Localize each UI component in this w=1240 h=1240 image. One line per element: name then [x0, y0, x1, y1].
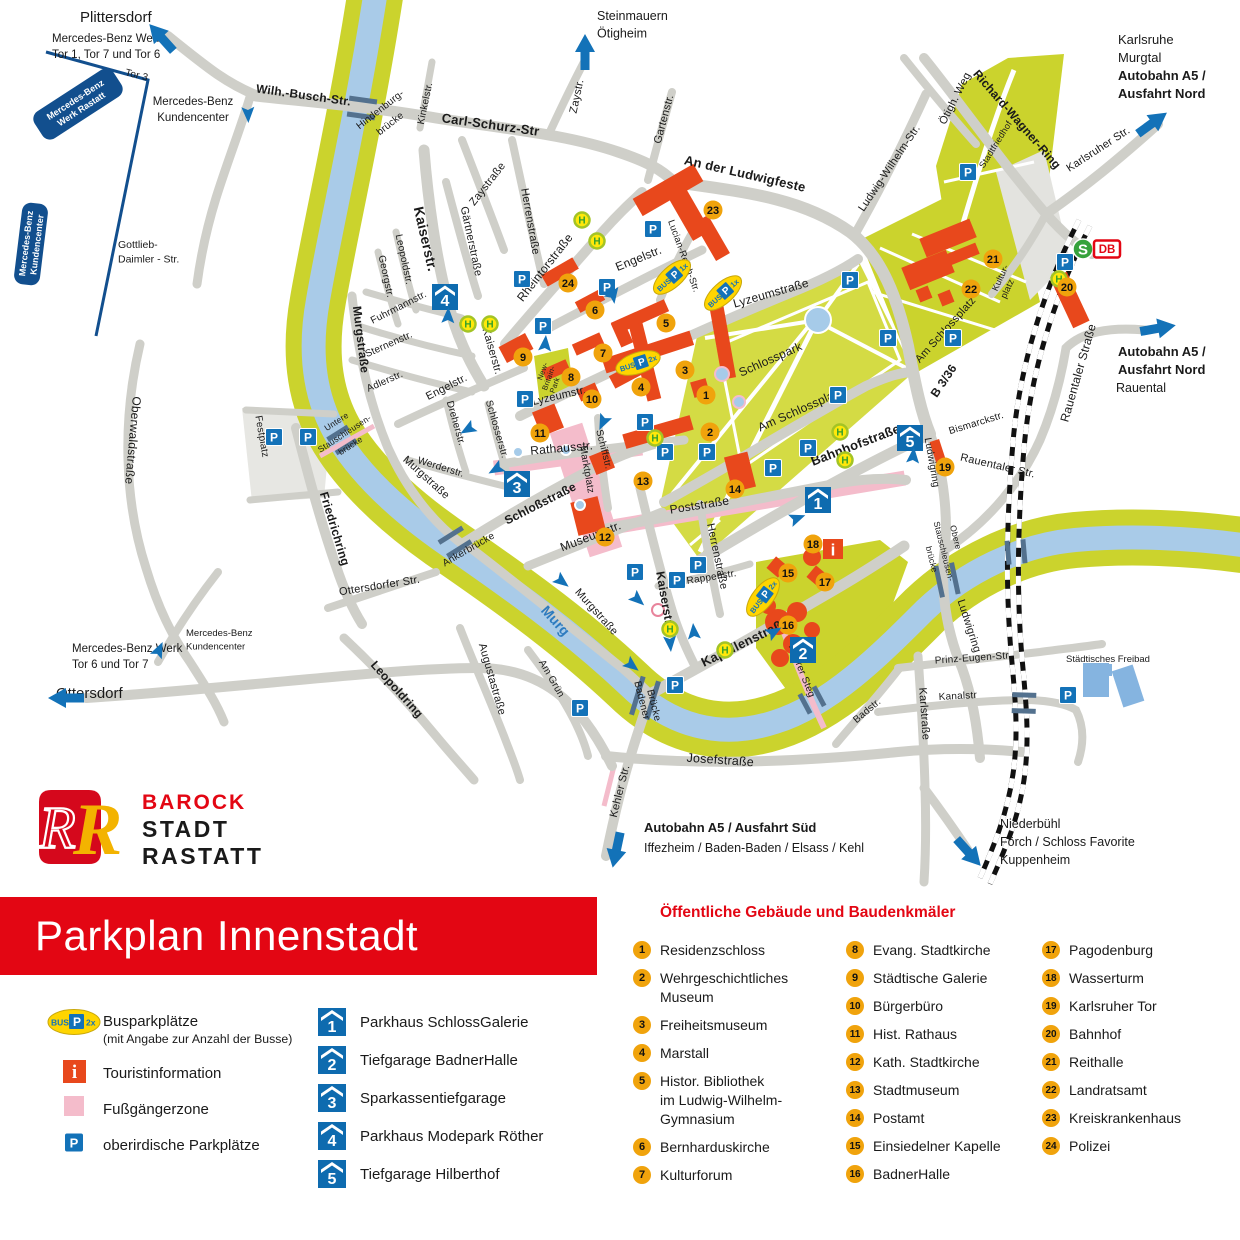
svg-text:4: 4 — [638, 382, 645, 394]
pedestrian-zone-swatch — [64, 1096, 84, 1116]
svg-text:R: R — [72, 789, 122, 868]
poi-index-badge: 6 — [633, 1138, 651, 1156]
poi-item-5: 5Histor. Bibliothekim Ludwig-Wilhelm-Gym… — [633, 1072, 788, 1129]
garage-item-1: 1Parkhaus SchlossGalerie — [318, 1008, 543, 1036]
svg-text:P: P — [70, 1136, 79, 1151]
direction-label: Autobahn A5 /Ausfahrt Nord — [1118, 344, 1206, 377]
svg-text:H: H — [721, 646, 728, 657]
poi-index-badge: 14 — [846, 1109, 864, 1127]
svg-text:P: P — [631, 566, 639, 580]
poi-item-16: 16BadnerHalle — [846, 1165, 1001, 1184]
surface-parking-icon: P — [65, 1132, 83, 1153]
direction-arrow — [1139, 315, 1178, 341]
svg-text:P: P — [649, 223, 657, 237]
legend-item-surface-parking: Poberirdische Parkplätze — [45, 1132, 335, 1155]
poi-marker: 21 — [984, 250, 1003, 269]
poi-marker: 24 — [559, 274, 578, 293]
svg-text:H: H — [841, 456, 848, 467]
bus-stop-icon: H — [590, 234, 605, 249]
poi-item-14: 14Postamt — [846, 1109, 1001, 1128]
poi-marker: 19 — [936, 458, 955, 477]
poi-item-12: 12Kath. Stadtkirche — [846, 1053, 1001, 1072]
one-way-arrow — [663, 635, 677, 652]
poi-marker: 2 — [701, 423, 720, 442]
poi-marker: 18 — [804, 535, 823, 554]
poi-item-1: 1Residenzschloss — [633, 941, 788, 960]
svg-text:19: 19 — [939, 462, 951, 474]
poi-label: Kath. Stadtkirche — [873, 1053, 980, 1072]
garage-marker: 4 — [432, 284, 458, 310]
poi-index-badge: 15 — [846, 1137, 864, 1155]
direction-label: Plittersdorf — [80, 9, 153, 26]
svg-text:BUS: BUS — [51, 1018, 69, 1028]
direction-label: Kuppenheim — [1000, 853, 1070, 867]
svg-text:P: P — [539, 320, 547, 334]
poi-index-badge: 12 — [846, 1053, 864, 1071]
rastatt-logo: R R BAROCK STADT RASTATT — [35, 786, 263, 870]
poi-marker: 20 — [1058, 278, 1077, 297]
svg-text:P: P — [703, 446, 711, 460]
svg-text:P: P — [949, 332, 957, 346]
parking-icon: P — [945, 330, 962, 347]
ottersdorf-road — [86, 668, 612, 766]
poi-label: Wasserturm — [1069, 969, 1144, 988]
svg-text:P: P — [673, 574, 681, 588]
svg-text:6: 6 — [592, 305, 598, 317]
svg-text:2x: 2x — [86, 1018, 96, 1028]
direction-label: KarlsruheMurgtal — [1118, 32, 1174, 65]
svg-text:9: 9 — [520, 352, 526, 364]
svg-text:15: 15 — [782, 568, 794, 580]
poi-item-2: 2WehrgeschichtlichesMuseum — [633, 969, 788, 1007]
svg-text:P: P — [1064, 689, 1072, 703]
poi-marker: 23 — [704, 201, 723, 220]
garage-item-2: 2Tiefgarage BadnerHalle — [318, 1046, 543, 1074]
logo-line-stadt: STADT — [142, 816, 263, 843]
direction-label: Mercedes-BenzKundencenter — [153, 96, 234, 124]
parking-icon: P — [830, 387, 847, 404]
plittersdorf-road — [168, 36, 258, 96]
direction-label: Mercedes-Benz WerkTor 1, Tor 7 und Tor 6 — [52, 33, 163, 61]
svg-text:24: 24 — [562, 278, 575, 290]
bus-stop-icon: H — [575, 213, 590, 228]
svg-text:2: 2 — [328, 1057, 337, 1074]
poi-index-badge: 11 — [846, 1025, 864, 1043]
legend-label: Busparkplätze(mit Angabe zur Anzahl der … — [103, 1008, 292, 1047]
garage-icon: 5 — [318, 1160, 346, 1188]
svg-text:H: H — [578, 216, 585, 227]
direction-label: Förch / Schloss Favorite — [1000, 835, 1135, 849]
poi-marker: 8 — [562, 368, 581, 387]
legend-label: oberirdische Parkplätze — [103, 1132, 260, 1155]
title-banner: Parkplan Innenstadt — [0, 897, 597, 975]
bus-stop-icon: H — [838, 453, 853, 468]
parking-icon: P — [842, 272, 859, 289]
poi-marker: 5 — [657, 314, 676, 333]
direction-label: Autobahn A5 /Ausfahrt Nord — [1118, 68, 1206, 101]
svg-text:P: P — [518, 273, 526, 287]
poi-marker: 9 — [514, 348, 533, 367]
direction-arrow — [575, 34, 595, 70]
mercedes-werk-box: Mercedes-BenzWerk Rastatt — [30, 65, 126, 143]
poi-index-badge: 3 — [633, 1016, 651, 1034]
legend-icon-cell: BUS P 2x — [45, 1008, 103, 1047]
poi-label: WehrgeschichtlichesMuseum — [660, 969, 788, 1007]
direction-label: Iffezheim / Baden-Baden / Elsass / Kehl — [644, 841, 864, 855]
poi-item-13: 13Stadtmuseum — [846, 1081, 1001, 1100]
poi-label: Bürgerbüro — [873, 997, 943, 1016]
svg-text:R: R — [38, 795, 76, 861]
legend-sublabel: (mit Angabe zur Anzahl der Busse) — [103, 1031, 292, 1047]
street-label: Schlosserstr. — [483, 399, 510, 460]
svg-text:P: P — [804, 442, 812, 456]
direction-label: Niederbühl — [1000, 817, 1060, 831]
parking-icon: P — [637, 414, 654, 431]
svg-text:4: 4 — [328, 1133, 337, 1150]
svg-text:5: 5 — [906, 434, 915, 451]
poi-item-8: 8Evang. Stadtkirche — [846, 941, 1001, 960]
svg-text:14: 14 — [729, 484, 742, 496]
parking-icon: P — [669, 572, 686, 589]
parking-icon: P — [657, 444, 674, 461]
direction-label: SteinmauernÖtigheim — [597, 9, 668, 41]
kundencenter-road — [197, 97, 250, 284]
parkplan-poster: Mercedes-BenzWerk RastattMercedes-BenzKu… — [0, 0, 1240, 1240]
svg-text:7: 7 — [600, 348, 606, 360]
poi-index-badge: 10 — [846, 997, 864, 1015]
poi-item-23: 23Kreiskrankenhaus — [1042, 1109, 1181, 1128]
legend-item-bus-parking: BUS P 2xBusparkplätze(mit Angabe zur Anz… — [45, 1008, 335, 1047]
freibad-building — [1100, 664, 1112, 676]
poi-label: Evang. Stadtkirche — [873, 941, 991, 960]
building — [771, 649, 789, 667]
svg-text:23: 23 — [707, 205, 719, 217]
street-label: Tor 3 — [124, 67, 149, 83]
poi-marker: 1 — [697, 386, 716, 405]
direction-label: Gottlieb-Daimler - Str. — [118, 239, 179, 266]
svg-text:13: 13 — [637, 476, 649, 488]
svg-text:20: 20 — [1061, 282, 1073, 294]
parking-icon: P — [880, 330, 897, 347]
svg-text:12: 12 — [599, 532, 611, 544]
parking-icon: P — [1060, 687, 1077, 704]
garage-icon: 4 — [318, 1122, 346, 1150]
poi-marker: 13 — [634, 472, 653, 491]
parking-icon: P — [300, 429, 317, 446]
svg-text:3: 3 — [682, 365, 688, 377]
svg-text:5: 5 — [663, 318, 669, 330]
logo-line-barock: BAROCK — [142, 790, 263, 816]
page-title: Parkplan Innenstadt — [0, 912, 418, 960]
svg-text:P: P — [73, 1015, 81, 1029]
map-legend: BUS P 2xBusparkplätze(mit Angabe zur Anz… — [45, 1008, 335, 1168]
poi-index-badge: 20 — [1042, 1025, 1060, 1043]
poi-index-badge: 7 — [633, 1166, 651, 1184]
garage-icon: 1 — [318, 1008, 346, 1036]
parking-icon: P — [572, 700, 589, 717]
street-label: Kanalstr — [938, 690, 977, 703]
svg-text:18: 18 — [807, 539, 819, 551]
poi-label: Postamt — [873, 1109, 924, 1128]
poi-marker: 3 — [676, 361, 695, 380]
street-label: Gartenstr. — [652, 93, 677, 145]
poi-item-3: 3Freiheitsmuseum — [633, 1016, 788, 1035]
svg-text:1: 1 — [703, 390, 709, 402]
poi-column-1: 1Residenzschloss2WehrgeschichtlichesMuse… — [633, 941, 788, 1194]
fountain — [513, 447, 523, 457]
one-way-arrow — [628, 590, 649, 610]
street-label: Dreherstr. — [444, 400, 467, 447]
street-label: B 3/36 — [928, 362, 960, 400]
tourist-info-icon: i — [823, 539, 843, 560]
poi-index-badge: 16 — [846, 1165, 864, 1183]
parking-icon: P — [266, 429, 283, 446]
svg-text:10: 10 — [586, 394, 598, 406]
svg-text:22: 22 — [965, 284, 977, 296]
garage-marker: 5 — [897, 425, 923, 451]
poi-label: Landratsamt — [1069, 1081, 1147, 1100]
street-label: Ludwig-Wilhelm-Str. — [856, 123, 923, 214]
garage-label: Tiefgarage Hilberthof — [360, 1166, 500, 1183]
direction-label: Rauental — [1116, 381, 1166, 395]
festplatz-road-nord — [246, 410, 334, 414]
bus-parking-icon: BUS P 2x — [46, 1008, 102, 1036]
poi-index-badge: 22 — [1042, 1081, 1060, 1099]
poi-label: Karlsruher Tor — [1069, 997, 1157, 1016]
poi-index-badge: 8 — [846, 941, 864, 959]
garage-marker: 1 — [805, 487, 831, 513]
svg-text:P: P — [603, 281, 611, 295]
poi-label: Residenzschloss — [660, 941, 765, 960]
svg-text:11: 11 — [534, 428, 546, 440]
svg-text:i: i — [71, 1062, 76, 1083]
legend-label: Touristinformation — [103, 1060, 221, 1083]
poi-marker: 17 — [816, 573, 835, 592]
legend-item-pedestrian-zone: Fußgängerzone — [45, 1096, 335, 1119]
svg-text:1: 1 — [328, 1019, 337, 1036]
poi-item-6: 6Bernharduskirche — [633, 1138, 788, 1157]
poi-label: Städtische Galerie — [873, 969, 987, 988]
direction-label: Städtisches Freibad — [1066, 654, 1150, 665]
poi-label: Bahnhof — [1069, 1025, 1121, 1044]
legend-icon-cell — [45, 1096, 103, 1119]
poi-label: Polizei — [1069, 1137, 1110, 1156]
sbahn-icon: S — [1073, 239, 1093, 259]
poi-label: Histor. Bibliothekim Ludwig-Wilhelm-Gymn… — [660, 1072, 782, 1129]
svg-text:H: H — [836, 428, 843, 439]
svg-text:3: 3 — [328, 1095, 337, 1112]
direction-label: Mercedes-BenzKundencenter — [186, 628, 253, 652]
fountain — [733, 396, 745, 408]
one-way-arrow — [687, 622, 701, 639]
poi-item-24: 24Polizei — [1042, 1137, 1181, 1156]
svg-text:H: H — [464, 320, 471, 331]
svg-text:P: P — [521, 393, 529, 407]
street-label: Prinz-Eugen-Str — [934, 650, 1009, 666]
poi-label: Hist. Rathaus — [873, 1025, 957, 1044]
svg-text:H: H — [593, 237, 600, 248]
poi-marker: 4 — [632, 378, 651, 397]
poi-label: Kulturforum — [660, 1166, 732, 1185]
svg-text:2: 2 — [799, 646, 808, 663]
karlsruher-str-road — [1046, 124, 1158, 214]
poi-item-10: 10Bürgerbüro — [846, 997, 1001, 1016]
poi-label: Marstall — [660, 1044, 709, 1063]
svg-text:H: H — [666, 625, 673, 636]
city-map: Mercedes-BenzWerk RastattMercedes-BenzKu… — [0, 0, 1240, 890]
direction-label: Autobahn A5 / Ausfahrt Süd — [644, 820, 816, 835]
garage-label: Tiefgarage BadnerHalle — [360, 1052, 518, 1069]
poi-label: Reithalle — [1069, 1053, 1123, 1072]
poi-column-3: 17Pagodenburg18Wasserturm19Karlsruher To… — [1042, 941, 1181, 1165]
svg-text:P: P — [964, 166, 972, 180]
legend-icon-cell: i — [45, 1060, 103, 1083]
db-icon: DB — [1094, 241, 1120, 258]
legend-item-tourist-info: iTouristinformation — [45, 1060, 335, 1083]
poi-index-badge: 1 — [633, 941, 651, 959]
poi-item-18: 18Wasserturm — [1042, 969, 1181, 988]
svg-text:H: H — [486, 320, 493, 331]
garage-label: Sparkassentiefgarage — [360, 1090, 506, 1107]
poi-marker: 12 — [596, 528, 615, 547]
poi-index-badge: 24 — [1042, 1137, 1060, 1155]
legend-icon-cell: P — [45, 1132, 103, 1155]
garage-icon: 3 — [318, 1084, 346, 1112]
parking-icon: P — [960, 164, 977, 181]
street-label: Herrenstraße — [518, 187, 541, 255]
building — [804, 622, 820, 638]
svg-text:P: P — [576, 702, 584, 716]
poi-label: Pagodenburg — [1069, 941, 1153, 960]
street-label: Leopoldstr. — [393, 233, 414, 285]
street-label: Bismarckstr. — [947, 410, 1005, 437]
bus-stop-icon: H — [718, 643, 733, 658]
tourist-info-icon: i — [63, 1060, 86, 1083]
svg-text:P: P — [884, 332, 892, 346]
rastatt-logo-emblem: R R — [35, 786, 127, 868]
poi-marker: 11 — [531, 424, 550, 443]
svg-text:8: 8 — [568, 372, 574, 384]
poi-label: Bernharduskirche — [660, 1138, 770, 1157]
bus-stop-icon: H — [461, 317, 476, 332]
fountain — [715, 367, 729, 381]
poi-item-17: 17Pagodenburg — [1042, 941, 1181, 960]
garage-marker: 3 — [504, 471, 530, 497]
fountain — [575, 500, 585, 510]
poi-marker: 7 — [594, 344, 613, 363]
mercedes-werk-box: Mercedes-BenzKundencenter — [13, 202, 49, 287]
bus-stop-icon: H — [663, 622, 678, 637]
parking-garage-list: 1Parkhaus SchlossGalerie 2Tiefgarage Bad… — [318, 1008, 543, 1198]
bus-stop-icon: H — [483, 317, 498, 332]
direction-label: Mercedes-Benz WerkTor 6 und Tor 7 — [72, 643, 183, 671]
poi-list-title: Öffentliche Gebäude und Baudenkmäler — [660, 904, 955, 922]
poi-index-badge: 18 — [1042, 969, 1060, 987]
parking-icon: P — [1057, 254, 1074, 271]
poi-item-21: 21Reithalle — [1042, 1053, 1181, 1072]
parking-icon: P — [517, 391, 534, 408]
svg-text:5: 5 — [328, 1171, 337, 1188]
svg-text:3: 3 — [513, 480, 522, 497]
svg-text:17: 17 — [819, 577, 831, 589]
poi-item-22: 22Landratsamt — [1042, 1081, 1181, 1100]
poi-label: Kreiskrankenhaus — [1069, 1109, 1181, 1128]
garage-icon: 2 — [318, 1046, 346, 1074]
svg-text:16: 16 — [782, 620, 794, 632]
poi-item-7: 7Kulturforum — [633, 1166, 788, 1185]
parking-icon: P — [645, 221, 662, 238]
poi-index-badge: 5 — [633, 1072, 651, 1090]
garage-item-4: 4Parkhaus Modepark Röther — [318, 1122, 543, 1150]
poi-index-badge: 19 — [1042, 997, 1060, 1015]
poi-marker: 14 — [726, 480, 745, 499]
parking-icon: P — [514, 271, 531, 288]
poi-item-20: 20Bahnhof — [1042, 1025, 1181, 1044]
svg-text:P: P — [769, 462, 777, 476]
poi-marker: 15 — [779, 564, 798, 583]
poi-index-badge: 21 — [1042, 1053, 1060, 1071]
poi-label: Freiheitsmuseum — [660, 1016, 767, 1035]
poi-index-badge: 2 — [633, 969, 651, 987]
poi-index-badge: 17 — [1042, 941, 1060, 959]
svg-text:P: P — [671, 679, 679, 693]
svg-text:21: 21 — [987, 254, 999, 266]
poi-label: Einsiedelner Kapelle — [873, 1137, 1001, 1156]
parking-icon: P — [627, 564, 644, 581]
parking-icon: P — [690, 557, 707, 574]
poi-marker: 6 — [586, 301, 605, 320]
bus-stop-icon: H — [648, 431, 663, 446]
poi-item-19: 19Karlsruher Tor — [1042, 997, 1181, 1016]
poi-marker: 16 — [779, 616, 798, 635]
svg-text:P: P — [834, 389, 842, 403]
parking-icon: P — [765, 460, 782, 477]
garage-marker: 2 — [790, 637, 816, 663]
svg-text:i: i — [831, 541, 836, 560]
parking-icon: P — [535, 318, 552, 335]
parking-icon: P — [667, 677, 684, 694]
fountain — [805, 307, 831, 333]
svg-text:P: P — [641, 416, 649, 430]
bus-stop-icon: H — [833, 425, 848, 440]
parking-icon: P — [699, 444, 716, 461]
poi-index-badge: 9 — [846, 969, 864, 987]
poi-label: BadnerHalle — [873, 1165, 950, 1184]
svg-text:DB: DB — [1099, 244, 1116, 256]
legend-label: Fußgängerzone — [103, 1096, 209, 1119]
poi-marker: 10 — [583, 390, 602, 409]
poi-item-9: 9Städtische Galerie — [846, 969, 1001, 988]
svg-text:P: P — [270, 431, 278, 445]
svg-text:P: P — [304, 431, 312, 445]
garage-label: Parkhaus Modepark Röther — [360, 1128, 543, 1145]
freibad-building — [1112, 665, 1145, 708]
poi-index-badge: 23 — [1042, 1109, 1060, 1127]
svg-text:1: 1 — [814, 496, 823, 513]
garage-item-3: 3Sparkassentiefgarage — [318, 1084, 543, 1112]
garage-item-5: 5Tiefgarage Hilberthof — [318, 1160, 543, 1188]
svg-text:2: 2 — [707, 427, 713, 439]
poi-item-11: 11Hist. Rathaus — [846, 1025, 1001, 1044]
svg-text:P: P — [661, 446, 669, 460]
josefstrasse-road — [606, 749, 1022, 762]
parking-icon: P — [800, 440, 817, 457]
svg-text:P: P — [1061, 256, 1069, 270]
one-way-arrow — [538, 334, 552, 351]
rastatt-logo-text: BAROCK STADT RASTATT — [142, 786, 263, 870]
poi-item-15: 15Einsiedelner Kapelle — [846, 1137, 1001, 1156]
garage-label: Parkhaus SchlossGalerie — [360, 1014, 528, 1031]
